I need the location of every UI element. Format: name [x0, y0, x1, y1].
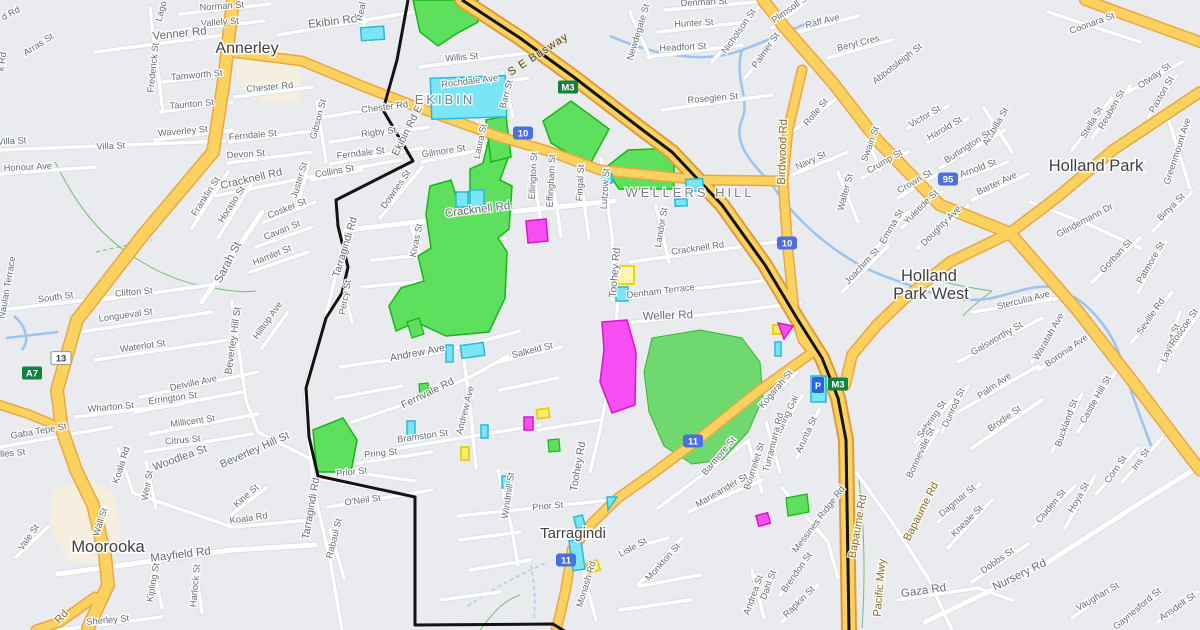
- svg-text:10: 10: [518, 129, 529, 140]
- street-label: Hunter St: [674, 17, 714, 29]
- route-shield: A7: [22, 367, 42, 380]
- svg-text:M3: M3: [831, 380, 844, 391]
- route-shield: 95: [938, 173, 958, 186]
- blue-parcel: P: [812, 377, 824, 393]
- svg-text:11: 11: [561, 556, 572, 567]
- svg-text:A7: A7: [26, 369, 38, 380]
- suburb-label: Annerley: [215, 40, 278, 57]
- suburb-label: Holland: [901, 267, 957, 285]
- svg-text:13: 13: [56, 354, 67, 365]
- route-shield: 11: [556, 554, 576, 567]
- suburb-label: EKIBIN: [415, 92, 476, 107]
- svg-text:95: 95: [943, 175, 954, 186]
- svg-text:M3: M3: [561, 83, 574, 94]
- suburb-label: WELLERS HILL: [625, 185, 754, 200]
- svg-text:10: 10: [782, 239, 793, 250]
- map-viewport[interactable]: P Norman StVallely StVenner RdArras Std …: [0, 0, 1200, 630]
- parking-icon: P: [815, 381, 821, 391]
- map-canvas[interactable]: P Norman StVallely StVenner RdArras Std …: [0, 0, 1200, 630]
- route-shield: 13: [51, 352, 71, 365]
- route-shield: 11: [683, 435, 703, 448]
- route-shield: 10: [513, 127, 533, 140]
- street-label: Birdwood Rd: [776, 119, 790, 185]
- route-shield: 10: [777, 237, 797, 250]
- street-label: Villa St: [96, 140, 126, 152]
- suburb-label: Park West: [893, 285, 969, 303]
- suburb-label: Holland Park: [1049, 157, 1144, 175]
- street-label: Weller Rd: [643, 309, 694, 323]
- svg-text:11: 11: [688, 437, 699, 448]
- street-label: Fingal St: [574, 164, 586, 202]
- suburb-label: Moorooka: [71, 538, 145, 556]
- route-shield: M3: [558, 81, 578, 94]
- route-shield: M3: [828, 378, 848, 391]
- street-label: Villa St: [0, 135, 27, 147]
- suburb-label: Tarragindi: [540, 525, 606, 542]
